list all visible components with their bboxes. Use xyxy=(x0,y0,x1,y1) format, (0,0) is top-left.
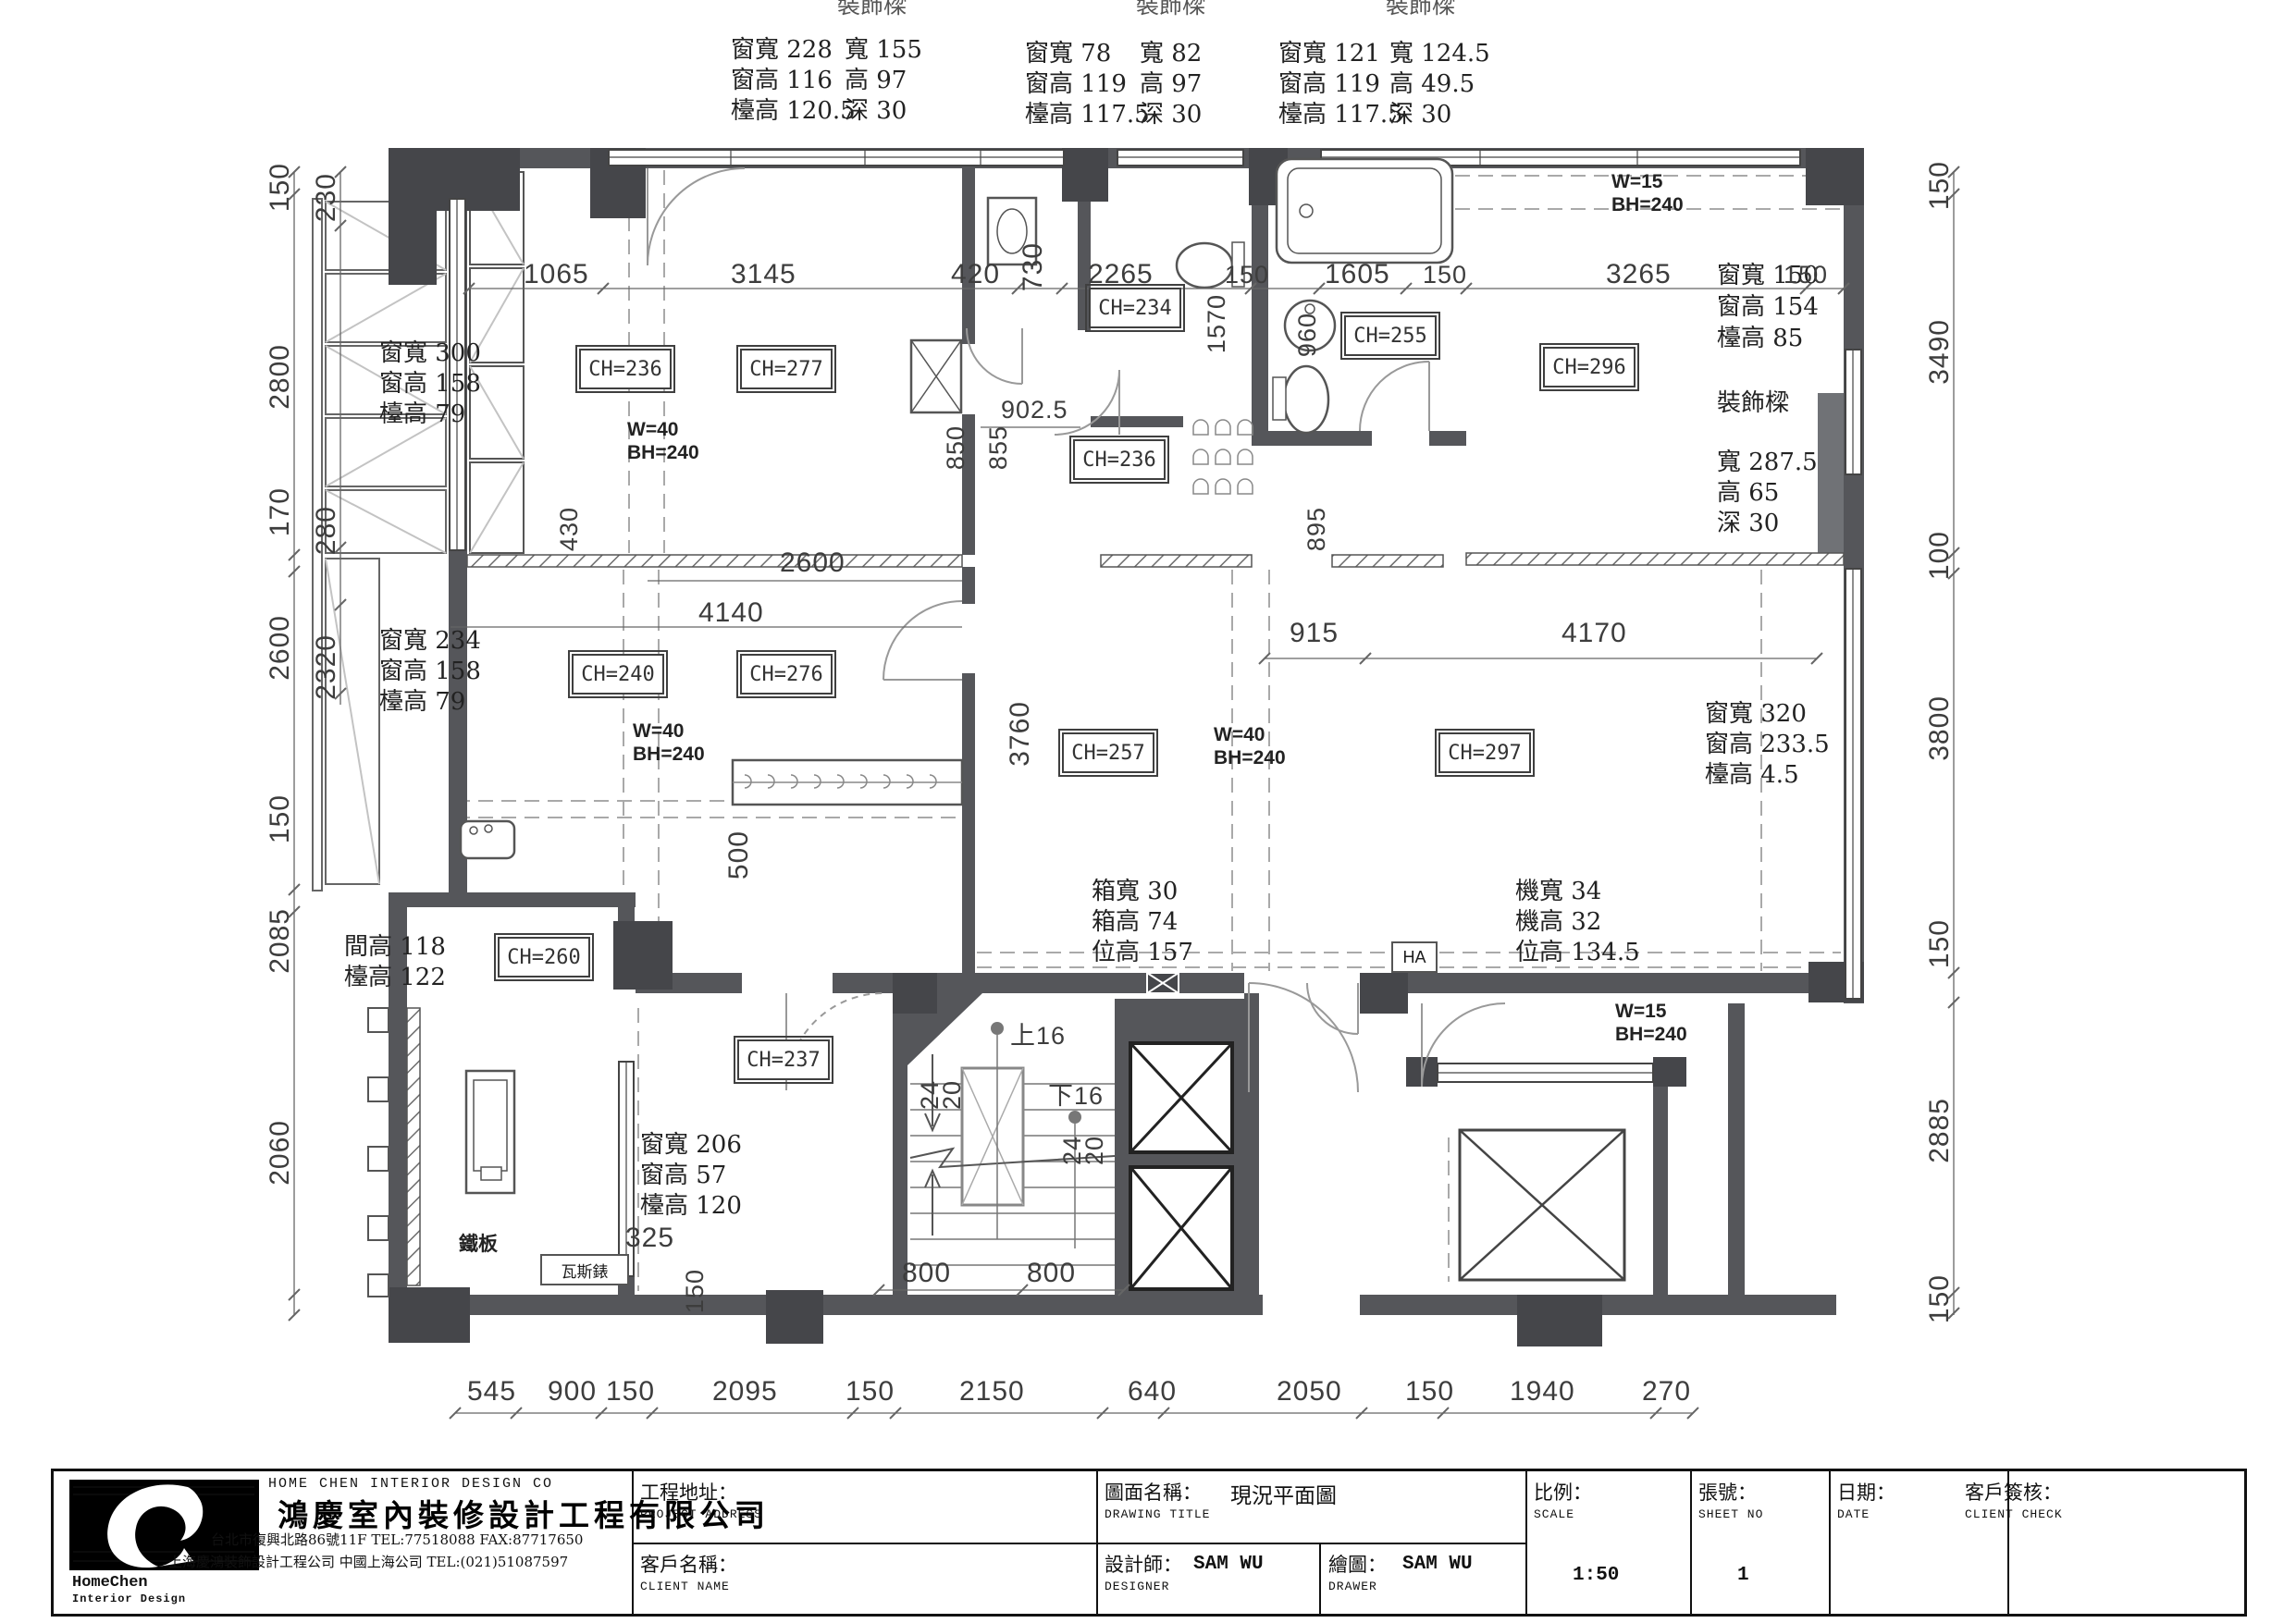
dim-bottom: 640 xyxy=(1128,1376,1177,1408)
ch-label: CH=240 xyxy=(572,654,664,695)
field-client-check: 客戶簽核： xyxy=(1965,1478,2062,1506)
beam-ann-top-1: 寬 155 xyxy=(845,35,922,66)
ch-label: CH=296 xyxy=(1543,347,1636,387)
dim-left: 280 xyxy=(311,506,342,555)
win-ann-right-upper: 檯高 85 xyxy=(1717,324,1803,354)
dim-inner: 850 xyxy=(942,425,970,470)
field-designer: 設計師： xyxy=(1105,1550,1182,1578)
field-client-name: 客戶名稱： xyxy=(640,1550,737,1578)
iron-plate-label: 鐵板 xyxy=(459,1228,498,1259)
box-unit-ann: 箱寬 30 xyxy=(1092,877,1178,907)
win-ann-top-2: 窗寬 78 xyxy=(1025,39,1111,69)
win-ann-top-3: 窗寬 121 xyxy=(1278,39,1380,69)
dim-inner: 855 xyxy=(984,425,1013,470)
win-ann-kitchen: 窗高 57 xyxy=(640,1161,726,1191)
dim-top: 1065 xyxy=(524,259,589,290)
win-ann-top-1: 窗寬 228 xyxy=(731,35,833,66)
win-ann-top-2: 檯高 117.5 xyxy=(1025,100,1150,130)
dim-top: 150 xyxy=(1423,261,1467,289)
dim-top: 420 xyxy=(951,259,1000,290)
gas-meter-label: 瓦斯錶 xyxy=(540,1254,629,1285)
stair-riser: 20 xyxy=(938,1080,967,1110)
win-ann-top-2: 窗高 119 xyxy=(1025,69,1127,100)
beam-ann-top-3: 寬 124.5 xyxy=(1389,39,1490,69)
dim-inner: 960 xyxy=(1293,313,1322,357)
field-drawing-title-sub: DRAWING TITLE xyxy=(1105,1507,1210,1521)
gap-ann-left: 間高 118 xyxy=(344,932,446,963)
dim-bottom: 2150 xyxy=(959,1376,1025,1408)
dim-inner: 430 xyxy=(555,507,584,551)
title-block-divider xyxy=(1829,1471,1831,1614)
win-ann-kitchen: 窗寬 206 xyxy=(640,1130,742,1161)
machine-unit-ann: 位高 134.5 xyxy=(1515,938,1640,968)
beam-header-clipped: 裝飾樑 xyxy=(1386,0,1469,18)
scale-value: 1:50 xyxy=(1573,1565,1619,1586)
ch-label: CH=297 xyxy=(1438,732,1531,773)
field-date-sub: DATE xyxy=(1837,1507,1870,1521)
beam-ann-top-1: 高 97 xyxy=(845,66,907,96)
dim-left: 2060 xyxy=(265,1120,296,1186)
box-unit-ann: 箱高 74 xyxy=(1092,907,1178,938)
dim-top: 150 xyxy=(1784,261,1828,289)
dim-top: 3265 xyxy=(1606,259,1672,290)
win-ann-right-upper: 窗高 154 xyxy=(1717,292,1819,323)
dim-bottom: 1940 xyxy=(1510,1376,1575,1408)
field-drawer: 繪圖： xyxy=(1328,1550,1387,1578)
ch-label: CH=276 xyxy=(740,654,833,695)
dim-right: 150 xyxy=(1924,1274,1956,1323)
beam-tag: W=15BH=240 xyxy=(1611,170,1684,216)
win-ann-right-lower: 窗高 233.5 xyxy=(1705,730,1830,760)
dim-left: 2085 xyxy=(265,908,296,974)
field-date: 日期： xyxy=(1837,1478,1895,1506)
beam-ann-top-2: 高 97 xyxy=(1140,69,1202,100)
dim-left: 230 xyxy=(311,173,342,222)
win-ann-top-3: 窗高 119 xyxy=(1278,69,1380,100)
dim-right: 3490 xyxy=(1924,319,1956,385)
dim-bottom: 150 xyxy=(606,1376,655,1408)
field-designer-sub: DESIGNER xyxy=(1105,1580,1169,1593)
win-ann-top-1: 檯高 120.5 xyxy=(731,96,856,127)
beam-tag: W=40BH=240 xyxy=(633,719,705,766)
dim-left: 2320 xyxy=(311,634,342,700)
company-address-sh: 上海慶鴻裝飾設計工程公司 中國上海公司 TEL:(021)51087597 xyxy=(168,1552,568,1571)
dim-inner: 2600 xyxy=(780,547,846,579)
stair-riser: 20 xyxy=(1080,1136,1109,1165)
dim-right: 150 xyxy=(1924,161,1956,210)
ch-label: CH=237 xyxy=(737,1039,830,1080)
field-scale: 比例： xyxy=(1534,1478,1592,1506)
drawing-sheet: 窗寬 228 窗高 116 檯高 120.5 寬 155 高 97 深 30 裝… xyxy=(0,0,2296,1623)
drawing-title-value: 現況平面圖 xyxy=(1230,1478,1337,1509)
dim-right: 150 xyxy=(1924,919,1956,968)
field-client-name-sub: CLIENT NAME xyxy=(640,1580,730,1593)
machine-unit-ann: 機寬 34 xyxy=(1515,877,1601,907)
ch-label: CH=257 xyxy=(1062,732,1154,773)
machine-unit-ann: 機高 32 xyxy=(1515,907,1601,938)
beam-tag: W=40BH=240 xyxy=(1214,723,1286,769)
stair-up-label: 上16 xyxy=(1010,1015,1066,1051)
dim-bottom: 150 xyxy=(1405,1376,1454,1408)
sheet-no-value: 1 xyxy=(1737,1565,1749,1586)
dim-bottom: 2095 xyxy=(712,1376,778,1408)
field-client-check-sub: CLIENT CHECK xyxy=(1965,1507,2063,1521)
company-address-tw: 台北市復興北路86號11F TEL:77518088 FAX:87717650 xyxy=(211,1530,583,1549)
ch-label: CH=277 xyxy=(740,349,833,389)
win-ann-top-1: 窗高 116 xyxy=(731,66,833,96)
dim-inner: 1570 xyxy=(1203,294,1231,353)
ha-label: HA xyxy=(1391,941,1438,973)
beam-ann-top-2: 寬 82 xyxy=(1140,39,1202,69)
field-scale-sub: SCALE xyxy=(1534,1507,1574,1521)
dim-inner: 325 xyxy=(625,1223,674,1254)
dim-right: 3800 xyxy=(1924,695,1956,761)
dim-bottom: 270 xyxy=(1642,1376,1691,1408)
beam-ann-top-1: 深 30 xyxy=(845,96,907,127)
win-ann-left-lower: 窗寬 234 xyxy=(379,626,481,657)
dim-top: 1605 xyxy=(1325,259,1390,290)
win-ann-right-lower: 窗寬 320 xyxy=(1705,699,1807,730)
dim-top: 150 xyxy=(1225,261,1269,289)
dim-bottom: 2050 xyxy=(1277,1376,1342,1408)
logo-subtext: Interior Design xyxy=(72,1592,186,1605)
win-ann-top-3: 檯高 117.5 xyxy=(1278,100,1403,130)
ch-label: CH=236 xyxy=(1073,439,1166,480)
dim-left: 150 xyxy=(265,163,296,212)
dim-inner: 150 xyxy=(681,1269,710,1313)
beam-ann-top-3: 深 30 xyxy=(1389,100,1451,130)
dim-inner: 895 xyxy=(1302,507,1331,551)
dim-inner: 902.5 xyxy=(1001,396,1068,424)
beam-ann-right: 裝飾樑 xyxy=(1717,388,1789,419)
dim-inner: 915 xyxy=(1290,618,1339,649)
dim-left: 150 xyxy=(265,794,296,843)
beam-ann-right: 寬 287.5 xyxy=(1717,448,1818,478)
beam-ann-top-2: 深 30 xyxy=(1140,100,1202,130)
field-sheet-no-sub: SHEET NO xyxy=(1698,1507,1763,1521)
win-ann-left-upper: 窗高 158 xyxy=(379,369,481,400)
beam-ann-right: 深 30 xyxy=(1717,509,1779,539)
dim-bottom: 545 xyxy=(467,1376,516,1408)
dim-left: 2600 xyxy=(265,615,296,681)
beam-tag: W=40BH=240 xyxy=(627,418,699,464)
drawer-value: SAM WU xyxy=(1402,1554,1473,1575)
field-drawing-title: 圖面名稱： xyxy=(1105,1478,1202,1506)
ch-label: CH=255 xyxy=(1344,315,1437,356)
title-block-divider xyxy=(1319,1543,1321,1614)
win-ann-left-lower: 窗高 158 xyxy=(379,657,481,687)
win-ann-right-lower: 檯高 4.5 xyxy=(1705,760,1799,791)
field-sheet-no: 張號： xyxy=(1698,1478,1757,1506)
win-ann-left-upper: 窗寬 300 xyxy=(379,338,481,369)
dim-bottom: 900 xyxy=(548,1376,597,1408)
field-project-address-sub: PROJECT ADDRESS xyxy=(640,1507,762,1521)
field-project-address: 工程地址： xyxy=(640,1478,737,1506)
title-block-divider xyxy=(1690,1471,1692,1614)
ch-label: CH=260 xyxy=(498,937,590,977)
title-block-divider xyxy=(1525,1471,1527,1614)
toilet-2 xyxy=(1284,366,1328,433)
dim-inner: 3760 xyxy=(1005,701,1036,767)
dim-stair: 800 xyxy=(902,1258,951,1289)
hanger-symbols xyxy=(733,420,1253,788)
beam-header-clipped: 裝飾樑 xyxy=(1136,0,1219,18)
table-x xyxy=(1460,1130,1624,1280)
designer-value: SAM WU xyxy=(1193,1554,1264,1575)
dim-inner: 4140 xyxy=(698,597,764,629)
stair-down-label: 下16 xyxy=(1048,1076,1104,1112)
beam-ann-top-3: 高 49.5 xyxy=(1389,69,1475,100)
field-drawer-sub: DRAWER xyxy=(1328,1580,1377,1593)
dim-right: 100 xyxy=(1924,531,1956,580)
ch-label: CH=236 xyxy=(579,349,672,389)
beam-ann-right: 高 65 xyxy=(1717,478,1779,509)
company-name-en: HOME CHEN INTERIOR DESIGN CO xyxy=(268,1476,553,1492)
dim-inner: 500 xyxy=(723,830,755,879)
dim-bottom: 150 xyxy=(846,1376,895,1408)
toilet xyxy=(1177,243,1232,288)
dim-left: 170 xyxy=(265,487,296,536)
shaft-column xyxy=(1147,973,1179,993)
ch-label: CH=234 xyxy=(1089,288,1181,328)
win-ann-kitchen: 檯高 120 xyxy=(640,1191,742,1222)
beam-header-clipped: 裝飾樑 xyxy=(837,0,920,18)
dim-inner: 4170 xyxy=(1562,618,1627,649)
beam-tag: W=15BH=240 xyxy=(1615,1000,1687,1046)
dim-left: 2800 xyxy=(265,344,296,410)
win-ann-left-upper: 檯高 79 xyxy=(379,400,465,430)
logo-text: HomeChen xyxy=(72,1574,148,1592)
doors xyxy=(648,168,1505,1092)
title-block-divider xyxy=(632,1543,1525,1544)
dim-top: 2265 xyxy=(1088,259,1154,290)
dim-right: 2885 xyxy=(1924,1098,1956,1163)
dim-stair: 800 xyxy=(1027,1258,1076,1289)
gap-ann-left: 檯高 122 xyxy=(344,963,446,993)
dim-top: 730 xyxy=(1018,242,1049,291)
win-ann-left-lower: 檯高 79 xyxy=(379,687,465,718)
box-unit-ann: 位高 157 xyxy=(1092,938,1193,968)
dim-top: 3145 xyxy=(731,259,796,290)
